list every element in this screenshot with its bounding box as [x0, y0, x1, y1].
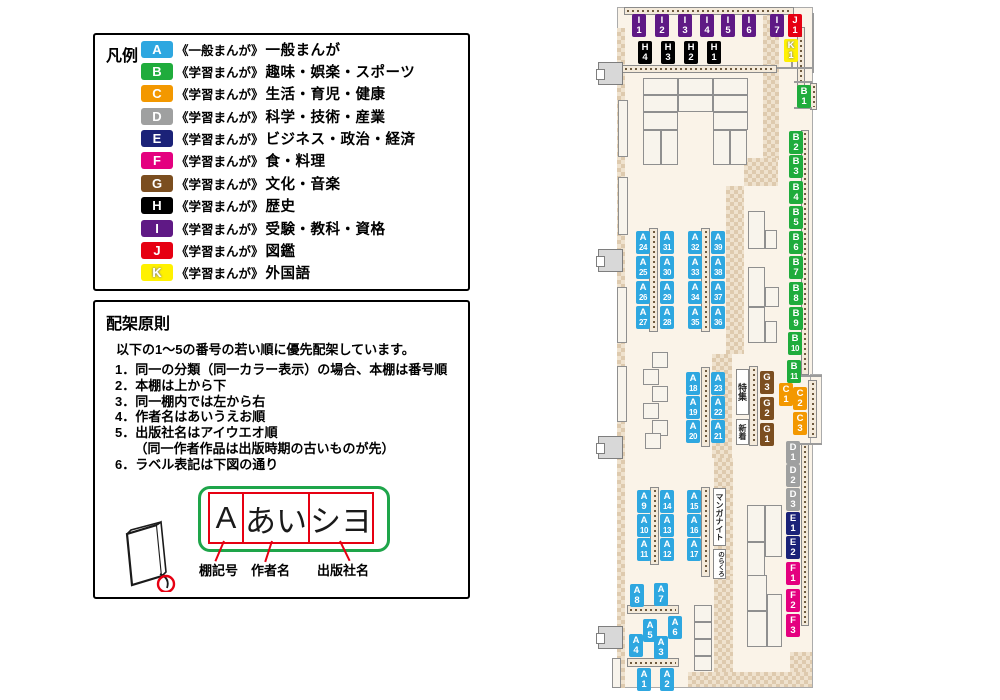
bookshelf-strip: [810, 83, 817, 110]
book-icon: [112, 514, 190, 592]
furniture: [765, 230, 777, 249]
label-example-shelf-box: A: [208, 492, 244, 544]
furniture: [713, 112, 748, 130]
furniture: [747, 505, 765, 542]
walkway: [726, 186, 744, 354]
legend-row-D: D《学習まんが》科学・技術・産業: [141, 107, 463, 125]
bookshelf-strip: [649, 228, 658, 332]
shelf-label-A35: A35: [688, 306, 702, 329]
shelf-label-B2: B2: [789, 131, 803, 154]
shelf-label-F1: F1: [786, 562, 800, 585]
shelf-label-A15: A15: [687, 490, 701, 513]
shelf-label-E2: E2: [786, 536, 800, 559]
shelf-label-A38: A38: [711, 256, 725, 279]
bookshelf-strip: [627, 658, 679, 667]
walkway: [714, 576, 733, 674]
shelf-label-A36: A36: [711, 306, 725, 329]
furniture: [694, 656, 712, 671]
furniture: [730, 130, 747, 165]
shelf-label-I1: I1: [632, 14, 646, 37]
shelf-label-I6: I6: [742, 14, 756, 37]
principle-item: 5．出版社名はアイウエオ順: [115, 425, 447, 441]
category-badge-C: C: [141, 85, 173, 102]
furniture: [747, 575, 767, 611]
shelf-label-A13: A13: [660, 514, 674, 537]
furniture: [765, 287, 779, 307]
category-series: 《学習まんが》: [176, 196, 264, 215]
shelf-label-F3: F3: [786, 614, 800, 637]
shelf-label-C3: C3: [793, 412, 807, 435]
label-example-author-box: あい: [242, 492, 310, 544]
legend-row-E: E《学習まんが》ビジネス・政治・経済: [141, 130, 463, 148]
legend-row-A: A《一般まんが》一般まんが: [141, 40, 463, 58]
shelf-label-D3: D3: [786, 488, 800, 511]
bookshelf-strip: [749, 366, 758, 446]
category-label: 科学・技術・産業: [266, 106, 386, 127]
callout-shelf-code: 棚記号: [199, 560, 238, 579]
callout-publisher: 出版社名: [317, 560, 369, 579]
category-series: 《学習まんが》: [176, 107, 264, 126]
shelf-label-E1: E1: [786, 512, 800, 535]
shelf-label-I3: I3: [678, 14, 692, 37]
furniture: [617, 366, 627, 422]
category-series: 《学習まんが》: [176, 219, 264, 238]
category-badge-H: H: [141, 197, 173, 214]
shelf-label-A9: A9: [637, 490, 651, 513]
door: [598, 62, 623, 85]
furniture: [767, 594, 782, 647]
shelf-label-H2: H2: [684, 41, 698, 64]
bookshelf-strip: [701, 228, 710, 332]
furniture: [618, 177, 628, 235]
legend-row-B: B《学習まんが》趣味・娯楽・スポーツ: [141, 62, 463, 80]
category-badge-G: G: [141, 175, 173, 192]
shelf-label-A23: A23: [711, 372, 725, 395]
door: [598, 436, 623, 459]
shelf-label-D1: D1: [786, 441, 800, 464]
category-badge-D: D: [141, 108, 173, 125]
shelf-label-J1: J1: [788, 14, 802, 37]
category-series: 《学習まんが》: [176, 263, 264, 282]
shelf-label-B11: B11: [787, 360, 801, 383]
area-label: 新着: [736, 419, 749, 445]
legend-row-G: G《学習まんが》文化・音楽: [141, 174, 463, 192]
shelf-label-F2: F2: [786, 589, 800, 612]
furniture: [678, 78, 713, 95]
furniture: [694, 639, 712, 656]
category-badge-B: B: [141, 63, 173, 80]
legend-row-I: I《学習まんが》受験・教科・資格: [141, 219, 463, 237]
category-label: 一般まんが: [266, 39, 341, 60]
furniture: [661, 130, 678, 165]
shelf-label-A29: A29: [660, 281, 674, 304]
shelf-label-A14: A14: [660, 490, 674, 513]
area-label: のらくろ: [713, 549, 726, 579]
shelf-label-A12: A12: [660, 538, 674, 561]
shelf-label-H3: H3: [661, 41, 675, 64]
label-example-publisher: シヨ: [310, 496, 372, 541]
category-label: 生活・育児・健康: [266, 83, 386, 104]
shelf-label-A2: A2: [660, 668, 674, 691]
legend-row-C: C《学習まんが》生活・育児・健康: [141, 85, 463, 103]
category-series: 《学習まんが》: [176, 174, 264, 193]
shelf-label-A10: A10: [637, 514, 651, 537]
shelf-label-B1: B1: [797, 85, 811, 108]
furniture: [748, 267, 765, 307]
shelf-label-A22: A22: [711, 396, 725, 419]
category-series: 《学習まんが》: [176, 62, 264, 81]
category-label: 外国語: [266, 262, 311, 283]
category-label: 受験・教科・資格: [266, 218, 386, 239]
principle-item: 6．ラベル表記は下図の通り: [115, 457, 447, 473]
furniture: [643, 403, 659, 419]
shelf-label-A18: A18: [686, 372, 700, 395]
principle-item: （同一作者作品は出版時期の古いものが先）: [115, 441, 447, 457]
furniture: [748, 211, 765, 249]
shelf-label-G1: G1: [760, 423, 774, 446]
furniture: [618, 100, 628, 157]
furniture: [748, 307, 765, 343]
legend-rows: A《一般まんが》一般まんがB《学習まんが》趣味・娯楽・スポーツC《学習まんが》生…: [141, 40, 463, 282]
shelf-label-B7: B7: [789, 256, 803, 279]
shelf-label-A20: A20: [686, 420, 700, 443]
category-badge-J: J: [141, 242, 173, 259]
category-series: 《一般まんが》: [176, 40, 264, 59]
bookshelf-strip: [650, 487, 659, 565]
category-label: ビジネス・政治・経済: [266, 128, 416, 149]
category-series: 《学習まんが》: [176, 241, 264, 260]
wall: [812, 13, 814, 73]
legend-row-F: F《学習まんが》食・料理: [141, 152, 463, 170]
shelf-label-B5: B5: [789, 206, 803, 229]
bookshelf-strip: [701, 367, 710, 447]
shelf-label-A26: A26: [636, 281, 650, 304]
shelf-label-A27: A27: [636, 306, 650, 329]
furniture: [645, 433, 661, 449]
legend-title: 凡例: [106, 42, 138, 66]
door: [598, 626, 623, 649]
principle-item: 3．同一棚内では左から右: [115, 394, 447, 410]
shelf-label-I7: I7: [770, 14, 784, 37]
walkway: [744, 158, 778, 186]
category-label: 文化・音楽: [266, 173, 341, 194]
shelf-label-A24: A24: [636, 231, 650, 254]
principle-item: 4．作者名はあいうえお順: [115, 409, 447, 425]
shelf-label-I2: I2: [655, 14, 669, 37]
shelf-label-H4: H4: [638, 41, 652, 64]
shelf-label-A16: A16: [687, 514, 701, 537]
shelf-label-A8: A8: [630, 584, 644, 607]
legend-row-J: J《学習まんが》図鑑: [141, 242, 463, 260]
wall: [777, 67, 812, 69]
category-badge-E: E: [141, 130, 173, 147]
shelf-label-A17: A17: [687, 538, 701, 561]
callout-author: 作者名: [251, 560, 290, 579]
principles-box: 配架原則 以下の1～5の番号の若い順に優先配架しています。 1．同一の分類（同一…: [93, 300, 470, 599]
shelf-label-A37: A37: [711, 281, 725, 304]
shelf-label-B10: B10: [788, 332, 802, 355]
shelf-label-A25: A25: [636, 256, 650, 279]
label-example-shelf: A: [216, 500, 237, 536]
furniture: [694, 605, 712, 622]
furniture: [747, 542, 765, 578]
shelf-label-A34: A34: [688, 281, 702, 304]
shelf-label-A3: A3: [654, 636, 668, 659]
furniture: [643, 130, 661, 165]
shelf-label-I4: I4: [700, 14, 714, 37]
legend-box: 凡例 A《一般まんが》一般まんがB《学習まんが》趣味・娯楽・スポーツC《学習まん…: [93, 33, 470, 291]
shelf-label-G2: G2: [760, 397, 774, 420]
category-series: 《学習まんが》: [176, 129, 264, 148]
bookshelf-strip: [808, 380, 817, 438]
furniture: [643, 95, 678, 112]
wall: [794, 81, 812, 83]
shelf-label-B8: B8: [789, 282, 803, 305]
principle-item: 2．本棚は上から下: [115, 378, 447, 394]
category-badge-I: I: [141, 220, 173, 237]
shelf-label-C1: C1: [779, 383, 793, 406]
furniture: [713, 130, 730, 165]
principles-intro: 以下の1～5の番号の若い順に優先配架しています。: [116, 339, 415, 358]
furniture: [765, 321, 777, 343]
shelf-label-A11: A11: [637, 538, 651, 561]
area-label: 特集: [736, 369, 749, 415]
furniture: [643, 78, 678, 95]
shelf-label-I5: I5: [721, 14, 735, 37]
furniture: [643, 369, 659, 385]
category-label: 図鑑: [266, 240, 296, 261]
furniture: [747, 611, 767, 647]
shelf-label-A28: A28: [660, 306, 674, 329]
category-badge-A: A: [141, 41, 173, 58]
shelf-label-A31: A31: [660, 231, 674, 254]
shelf-label-B4: B4: [789, 181, 803, 204]
category-badge-K: K: [141, 264, 173, 281]
page: { "legend": { "title": "凡例", "rows": [ {…: [0, 0, 1000, 700]
furniture: [765, 505, 782, 557]
shelf-label-A21: A21: [711, 420, 725, 443]
label-example-author: あい: [245, 496, 307, 541]
walkway: [790, 652, 812, 672]
furniture: [694, 622, 712, 639]
category-series: 《学習まんが》: [176, 151, 264, 170]
door: [598, 249, 623, 272]
furniture: [617, 287, 627, 343]
furniture: [643, 112, 678, 130]
shelf-label-A39: A39: [711, 231, 725, 254]
shelf-label-D2: D2: [786, 464, 800, 487]
shelf-label-B9: B9: [789, 307, 803, 330]
shelf-label-C2: C2: [793, 387, 807, 410]
furniture: [713, 78, 748, 95]
shelf-label-A32: A32: [688, 231, 702, 254]
shelf-label-A7: A7: [654, 583, 668, 606]
category-label: 趣味・娯楽・スポーツ: [266, 61, 416, 82]
principle-item: 1．同一の分類（同一カラー表示）の場合、本棚は番号順: [115, 362, 447, 378]
category-badge-F: F: [141, 152, 173, 169]
walkway: [688, 672, 812, 687]
furniture: [713, 95, 748, 112]
shelf-label-K1: K1: [784, 39, 798, 62]
furniture: [678, 95, 713, 112]
shelf-label-A19: A19: [686, 396, 700, 419]
shelf-label-B6: B6: [789, 231, 803, 254]
bookshelf-strip: [801, 443, 809, 626]
category-label: 食・料理: [266, 150, 326, 171]
furniture: [652, 352, 668, 368]
shelf-label-A30: A30: [660, 256, 674, 279]
area-label: マンガナイト: [713, 488, 726, 546]
shelf-label-H1: H1: [707, 41, 721, 64]
category-series: 《学習まんが》: [176, 84, 264, 103]
furniture: [652, 386, 668, 402]
principles-list: 1．同一の分類（同一カラー表示）の場合、本棚は番号順2．本棚は上から下3．同一棚…: [115, 362, 447, 473]
shelf-label-A6: A6: [668, 616, 682, 639]
legend-row-K: K《学習まんが》外国語: [141, 264, 463, 282]
shelf-label-A4: A4: [629, 634, 643, 657]
furniture: [612, 658, 621, 688]
label-example-publisher-box: シヨ: [308, 492, 374, 544]
shelf-label-B3: B3: [789, 155, 803, 178]
category-label: 歴史: [266, 195, 296, 216]
principles-title: 配架原則: [106, 310, 170, 334]
bookshelf-strip: [701, 487, 710, 577]
shelf-label-A1: A1: [637, 668, 651, 691]
shelf-label-G3: G3: [760, 371, 774, 394]
shelf-label-A33: A33: [688, 256, 702, 279]
bookshelf-strip: [622, 65, 777, 73]
legend-row-H: H《学習まんが》歴史: [141, 197, 463, 215]
